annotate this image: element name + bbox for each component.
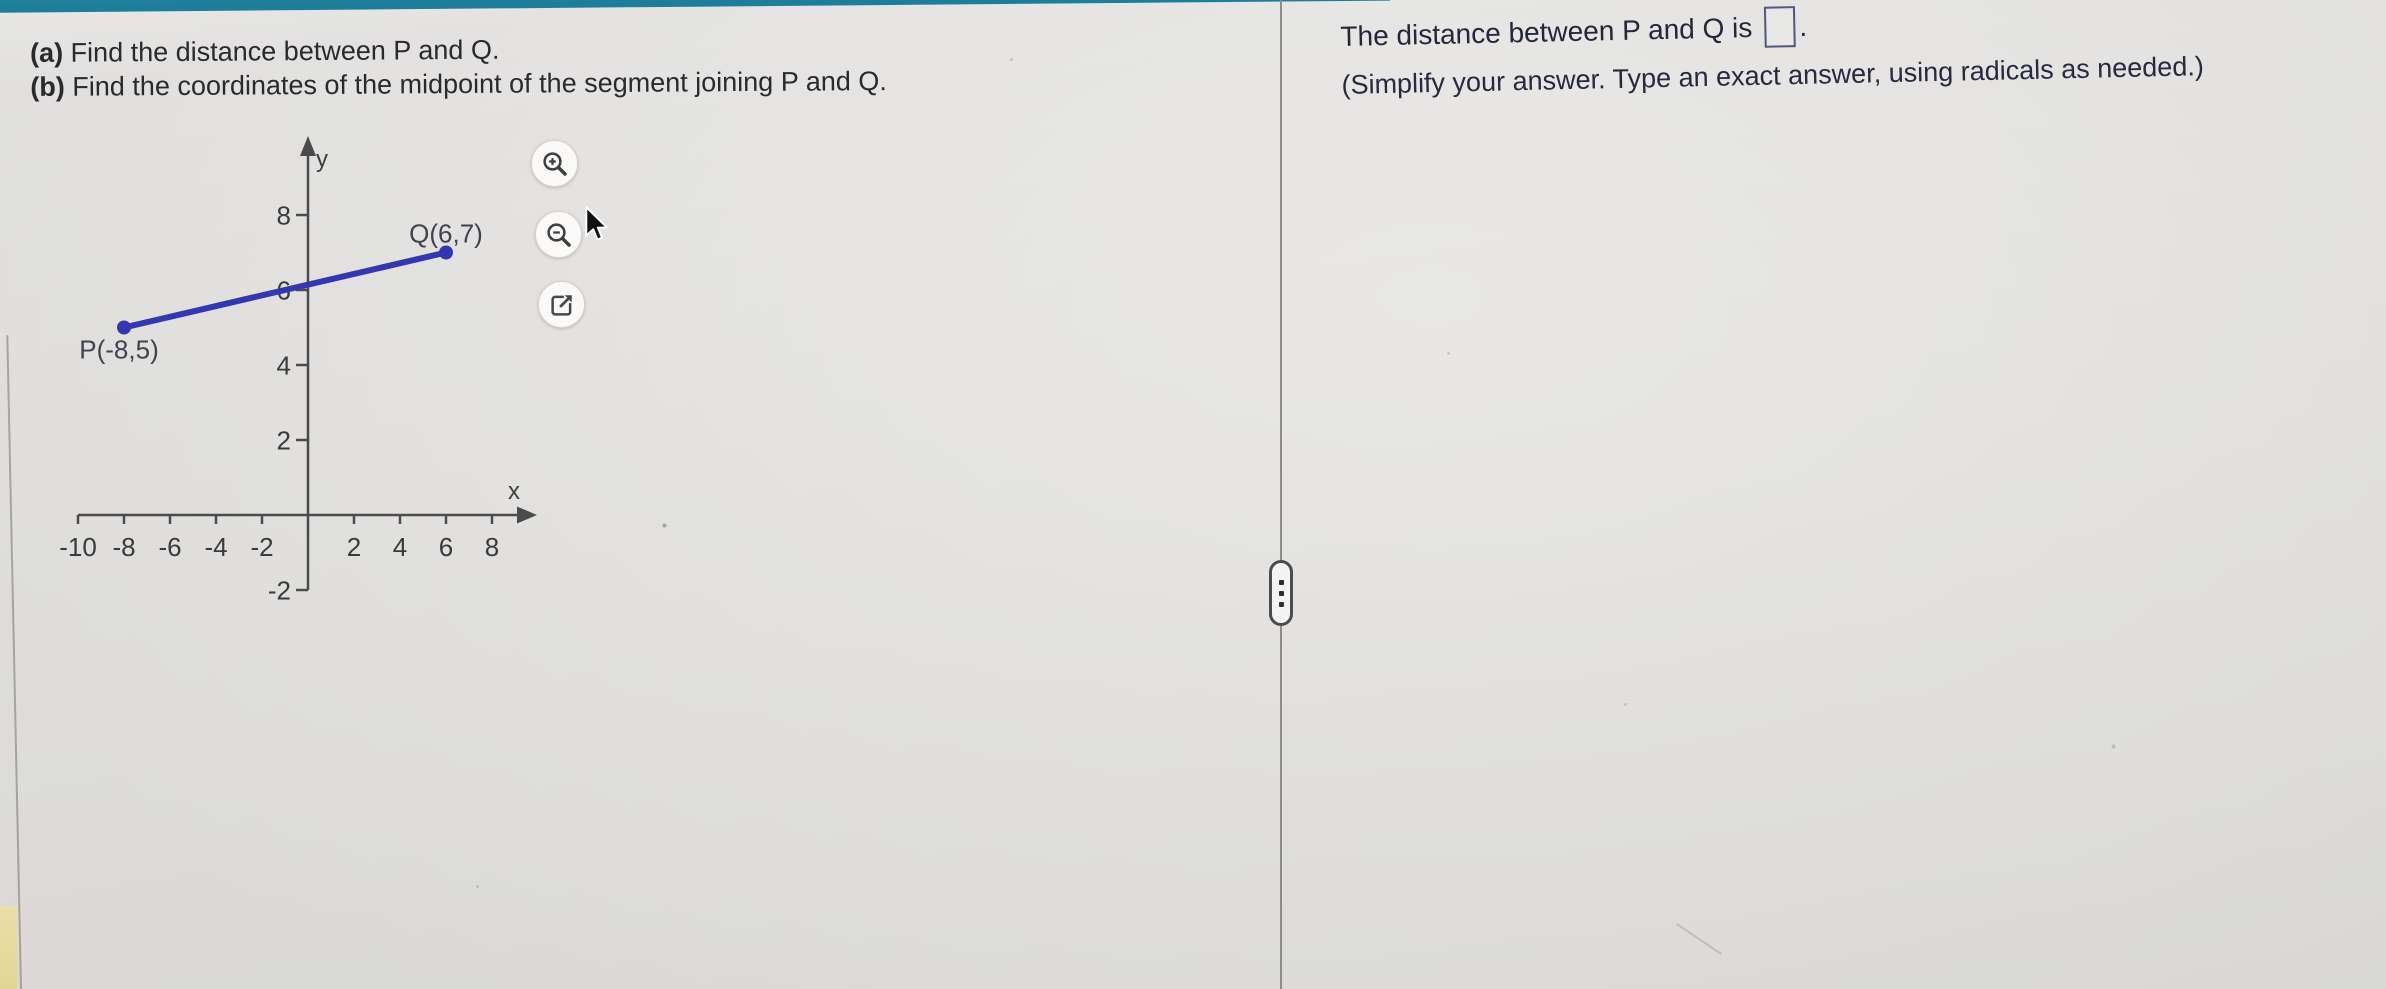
coordinate-graph: -10-8-6-4-224688642-2xyP(-8,5)Q(6,7) [40, 125, 560, 625]
svg-text:2: 2 [277, 426, 291, 456]
drag-handle-dot [1279, 602, 1284, 607]
top-accent-bar [0, 0, 1390, 13]
open-in-new-window-icon [547, 290, 577, 320]
window-edge [6, 335, 22, 989]
distance-answer-input[interactable] [1764, 6, 1796, 48]
svg-text:4: 4 [277, 351, 291, 381]
svg-text:-2: -2 [250, 532, 273, 562]
part-a-label: (a) [30, 38, 63, 68]
svg-text:Q(6,7): Q(6,7) [409, 219, 483, 249]
zoom-out-button[interactable] [535, 211, 582, 258]
open-graph-button[interactable] [538, 281, 585, 328]
desk-corner [0, 906, 17, 989]
svg-text:-4: -4 [204, 532, 227, 562]
dust-specks [0, 0, 3, 3]
svg-text:8: 8 [485, 532, 499, 562]
app-window: (a) Find the distance between P and Q. (… [0, 0, 2386, 989]
drag-handle-dot [1279, 591, 1284, 596]
zoom-in-button[interactable] [531, 140, 578, 187]
svg-text:2: 2 [347, 532, 361, 562]
distance-statement: The distance between P and Q is [1340, 12, 1753, 53]
svg-text:x: x [508, 478, 520, 505]
svg-text:-10: -10 [59, 532, 97, 562]
part-a-text: Find the distance between P and Q. [63, 35, 499, 68]
answer-instruction: (Simplify your answer. Type an exact ans… [1341, 51, 2204, 101]
svg-text:-8: -8 [112, 532, 135, 562]
mouse-cursor [584, 206, 612, 246]
panel-divider [1280, 0, 1282, 989]
svg-text:P(-8,5): P(-8,5) [79, 335, 158, 365]
svg-text:-6: -6 [158, 532, 181, 562]
svg-text:6: 6 [439, 532, 453, 562]
divider-drag-handle[interactable] [1269, 560, 1293, 626]
drag-handle-dot [1279, 580, 1284, 585]
problem-part-b: (b) Find the coordinates of the midpoint… [30, 64, 887, 104]
zoom-out-icon [544, 220, 574, 250]
answer-panel: The distance between P and Q is . (Simpl… [1340, 0, 2204, 101]
zoom-in-icon [540, 149, 570, 179]
svg-text:-2: -2 [268, 576, 291, 606]
problem-statement: (a) Find the distance between P and Q. (… [30, 30, 887, 104]
scratch-mark [1676, 923, 1722, 955]
statement-period: . [1799, 10, 1807, 42]
svg-text:4: 4 [393, 532, 407, 562]
svg-text:y: y [316, 146, 328, 173]
part-b-text: Find the coordinates of the midpoint of … [65, 66, 887, 102]
svg-text:8: 8 [277, 201, 291, 231]
part-b-label: (b) [30, 72, 65, 102]
